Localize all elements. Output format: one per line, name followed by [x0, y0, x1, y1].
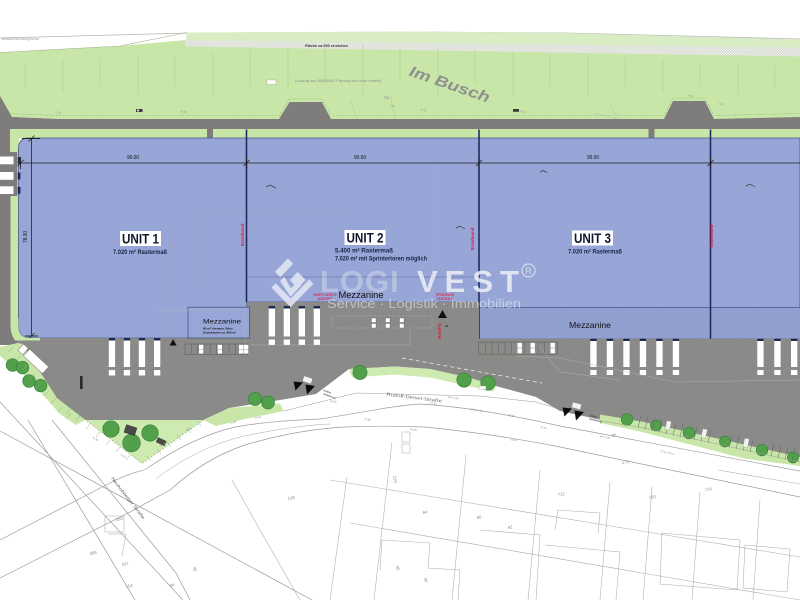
svg-text:AUSFHRT: AUSFHRT — [318, 297, 333, 301]
svg-text:Brandwand: Brandwand — [709, 224, 714, 247]
svg-text:UNIT 1: UNIT 1 — [122, 232, 159, 247]
svg-text:Brandwand: Brandwand — [470, 227, 475, 250]
svg-text:90.00: 90.00 — [354, 155, 366, 161]
svg-text:VEST: VEST — [417, 264, 526, 299]
svg-text:5.400 m² Rastermaß: 5.400 m² Rastermaß — [335, 248, 393, 255]
svg-text:Mezzanine: Mezzanine — [339, 290, 384, 301]
svg-text:720: 720 — [648, 494, 656, 500]
svg-text:7.020 m² mit Sprintertoren mög: 7.020 m² mit Sprintertoren möglich — [335, 256, 427, 263]
svg-text:Mezzanine: Mezzanine — [203, 319, 241, 326]
svg-text:ZENTRALE: ZENTRALE — [437, 297, 454, 301]
svg-text:7.020 m² Rastermaß: 7.020 m² Rastermaß — [568, 249, 622, 256]
svg-text:123: 123 — [761, 423, 769, 429]
svg-text:Brandwand: Brandwand — [240, 223, 245, 246]
svg-text:7.020 m² Rastermaß: 7.020 m² Rastermaß — [113, 249, 167, 256]
svg-text:714: 714 — [704, 486, 712, 492]
svg-text:Fläche ca 800 erreichen: Fläche ca 800 erreichen — [305, 44, 349, 48]
svg-text:90.00: 90.00 — [587, 155, 599, 161]
svg-text:Bestand Anbindung Achse: Bestand Anbindung Achse — [2, 37, 39, 41]
svg-text:RAMPE: RAMPE — [437, 323, 442, 339]
svg-text:712: 712 — [557, 491, 565, 497]
svg-text:173: 173 — [621, 459, 629, 465]
svg-text:90.00: 90.00 — [127, 155, 139, 161]
svg-text:(Auszug aus 2865/5002 Planung: (Auszug aus 2865/5002 Planung wird noch … — [295, 79, 382, 83]
svg-text:R: R — [525, 266, 532, 276]
svg-text:Mezzanine: Mezzanine — [569, 321, 612, 330]
svg-text:78.00: 78.00 — [23, 231, 29, 243]
svg-text:UNIT 2: UNIT 2 — [347, 231, 384, 246]
svg-text:UNIT 3: UNIT 3 — [574, 231, 611, 246]
svg-text:Sozialräume ca. 600 m²: Sozialräume ca. 600 m² — [203, 331, 236, 335]
